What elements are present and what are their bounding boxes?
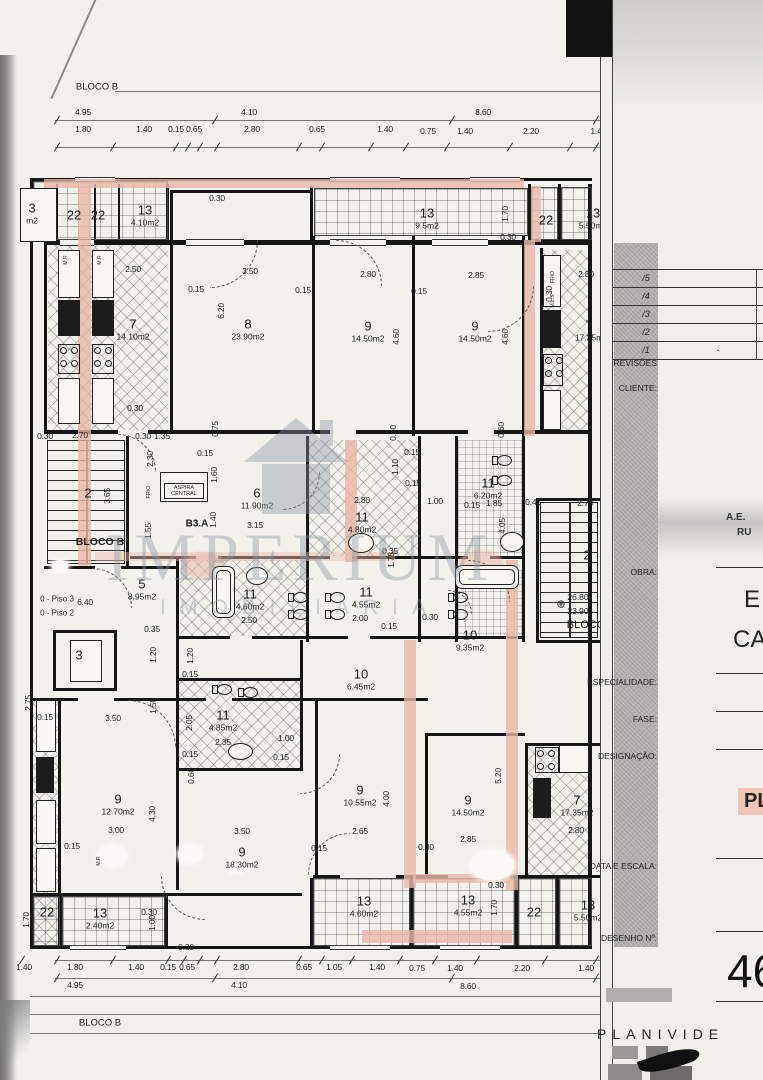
wall — [536, 640, 600, 643]
unit-highlight — [362, 930, 512, 943]
client-value-line2: RU — [737, 527, 751, 538]
dimension-label: 0.15 — [404, 447, 420, 457]
sink — [246, 567, 268, 585]
dimension-label: 1.05 — [326, 962, 342, 972]
date-scale-label: DATA E ESCALA: — [590, 861, 657, 871]
dimension-label: 0.15 — [197, 448, 213, 458]
room-label: 22 — [91, 209, 105, 224]
dimension-line — [55, 978, 600, 979]
room-label: 2 — [583, 549, 590, 564]
dimension-label: 8.60 — [475, 107, 491, 117]
toilet — [288, 592, 309, 604]
dimension-label: 2.85 — [460, 834, 476, 844]
wall — [418, 436, 421, 642]
sink — [500, 532, 524, 552]
dimension-label: 3.00 — [108, 825, 124, 835]
dimension-label: 2.00 — [352, 613, 368, 623]
toilet — [325, 592, 346, 604]
room-label: 3m2 — [26, 202, 38, 227]
oven — [533, 778, 551, 818]
dimension-label: 0.60 — [186, 768, 196, 784]
title-block-rule — [716, 749, 763, 750]
dimension-label: 0.35 — [144, 624, 160, 634]
wall — [425, 735, 428, 878]
toilet — [288, 609, 309, 621]
dimension-label: 3.50 — [234, 826, 250, 836]
toilet — [325, 609, 346, 621]
door-gap — [468, 430, 494, 434]
dimension-label: 0.65 — [179, 962, 195, 972]
door-swing-arc — [92, 568, 132, 608]
appliance-box — [58, 250, 80, 298]
dimension-label: 0.15 — [160, 962, 176, 972]
work-value-line2: CA — [733, 626, 763, 654]
dimension-label: 1.50 — [148, 698, 158, 714]
room-label: 910.55m2 — [343, 784, 376, 809]
wall — [178, 768, 303, 771]
plan-text: 26.80 — [567, 592, 588, 602]
revision-table-line — [612, 269, 763, 270]
dimension-label: 1.10 — [390, 459, 400, 475]
dimension-label: 2.80 — [233, 962, 249, 972]
unit-highlight — [78, 186, 91, 566]
dimension-label: 2.70 — [577, 498, 593, 508]
dimension-label: 0.60 — [496, 422, 506, 438]
title-block-rule — [716, 1001, 763, 1002]
room-label: 22 — [539, 214, 553, 229]
title-block-divider-line — [600, 57, 601, 1080]
dimension-label: 1.70 — [21, 912, 31, 928]
room-label: 914.50m2 — [458, 320, 491, 345]
scan-spot — [98, 846, 126, 866]
logo-block — [612, 1046, 638, 1059]
unit-highlight — [524, 240, 535, 436]
dimension-label: 4.10 — [241, 107, 257, 117]
dimension-label: 6.20 — [216, 303, 226, 319]
dimension-label: 3.15 — [247, 520, 263, 530]
dimension-label: 4.60 — [391, 329, 401, 345]
dimension-label: 3.65 — [102, 488, 112, 504]
dimension-label: 3.50 — [242, 266, 258, 276]
scanned-floor-plan-page: BLOCO B BLOCO B 4.954.108.601.801.400.15… — [0, 0, 763, 1080]
dimension-label: 1.40 — [457, 126, 473, 136]
unit-highlight — [506, 560, 518, 890]
dimension-label: 1.70 — [500, 206, 510, 222]
dimension-label: 2.70 — [72, 430, 88, 440]
dimension-label: 4.00 — [381, 791, 391, 807]
dimension-label: 3.50 — [105, 713, 121, 723]
dimension-label: 2.20 — [514, 963, 530, 973]
wall — [114, 630, 117, 691]
dimension-label: 1.70 — [489, 900, 499, 916]
bathtub — [455, 565, 519, 589]
dimension-label: 1.00 — [147, 915, 157, 931]
wall — [310, 186, 313, 241]
logo-smudge — [606, 988, 672, 1002]
dimension-label: 4.30 — [147, 806, 157, 822]
title-block-label-band — [614, 243, 658, 947]
dimension-line — [55, 960, 600, 961]
room-label: 132.40m2 — [86, 907, 114, 932]
revision-table-column-line — [756, 269, 757, 359]
bathtub — [212, 566, 235, 618]
dimension-label: 2.80 — [354, 495, 370, 505]
dimension-label: 0.65 — [186, 124, 202, 134]
dimension-label: 1.00 — [278, 733, 294, 743]
dimension-label: 6.40 — [77, 597, 93, 607]
sink — [348, 533, 374, 553]
oven — [543, 310, 561, 348]
dimension-label: 1.35 — [154, 431, 170, 441]
dimension-label: 1.40 — [136, 124, 152, 134]
oven — [92, 300, 114, 336]
toilet — [448, 609, 469, 621]
plan-text: FRIO — [550, 271, 556, 283]
room-label: 135.50m2 — [574, 899, 602, 924]
wall — [53, 630, 56, 691]
dimension-label: 0.15 — [182, 669, 198, 679]
dimension-line — [55, 147, 600, 148]
door-gap — [78, 698, 114, 701]
dimension-label: 1.40 — [128, 962, 144, 972]
appliance-box — [36, 800, 56, 844]
title-block-rule — [716, 567, 763, 568]
revision-table-line — [612, 305, 763, 306]
dimension-label: 0.30 — [500, 232, 516, 242]
dimension-label: 0.30 — [488, 880, 504, 890]
hatch-area — [33, 896, 60, 946]
dimension-label: 1.80 — [67, 962, 83, 972]
dimension-label: 2.80 — [568, 825, 584, 835]
room-label: 22 — [40, 906, 54, 921]
window — [432, 239, 488, 246]
dimension-label: 2.65 — [352, 826, 368, 836]
logo-block — [608, 1064, 642, 1080]
plan-text: M.L.S — [550, 294, 556, 307]
room-label: 914.50m2 — [451, 794, 484, 819]
dimension-label: 0.45 — [525, 497, 541, 507]
scan-spot — [178, 845, 202, 863]
revision-table-line — [612, 287, 763, 288]
dimension-label: 2.80 — [244, 124, 260, 134]
revision-row-label: /5 — [642, 273, 650, 283]
scan-spot — [470, 850, 514, 880]
dimension-label: 0.30 — [37, 431, 53, 441]
title-block-edge-line — [612, 0, 613, 1080]
dimension-label: 5.20 — [493, 768, 503, 784]
client-value-line1: A.E. — [726, 512, 745, 523]
room-label: 109.35m2 — [456, 629, 484, 654]
dimension-label: 0.30 — [209, 193, 225, 203]
wall — [44, 245, 47, 433]
wall — [53, 630, 117, 633]
plan-text: M.L.R — [97, 311, 103, 324]
dimension-label: 0.15 — [182, 749, 198, 759]
room-label: 611.90m2 — [241, 487, 273, 512]
room-label: 918.30m2 — [225, 846, 258, 871]
wall — [300, 640, 303, 770]
dimension-label: 0.15 — [311, 843, 327, 853]
dimension-label: 1.40 — [578, 963, 594, 973]
plan-text: M.R — [97, 255, 103, 264]
dimension-label: 4.95 — [67, 980, 83, 990]
dimension-label: 2.85 — [468, 270, 484, 280]
wall — [170, 190, 173, 433]
revision-row-label: /4 — [642, 291, 650, 301]
room-label: 114.80m2 — [348, 511, 376, 536]
plan-text: 0 - Piso 2 — [40, 609, 74, 618]
toilet — [212, 684, 233, 696]
revision-table-line — [612, 359, 763, 360]
room-label: 22 — [67, 209, 81, 224]
door-swing-arc — [336, 240, 382, 286]
room-label: 912.70m2 — [101, 793, 134, 818]
plan-text: M.L.R — [63, 311, 69, 324]
dimension-label: 1.40 — [447, 963, 463, 973]
dimension-label: 1.55 — [143, 523, 153, 539]
dimension-label: 4.60 — [500, 329, 510, 345]
scan-black-box — [566, 0, 612, 57]
drawing-no-label: DESENHO Nº: — [601, 933, 657, 943]
dimension-label: 0.30 — [178, 942, 194, 952]
dimension-label: 0.65 — [309, 124, 325, 134]
title-block-rule — [716, 858, 763, 859]
dimension-label: 1.20 — [148, 647, 158, 663]
dimension-label: 1.40 — [208, 512, 218, 528]
appliance-box — [36, 700, 56, 752]
client-label: CLIENTE: — [619, 383, 657, 393]
dimension-label: 0.30 — [422, 612, 438, 622]
room-label: 106.45m2 — [347, 668, 375, 693]
planivide-logo-text: PLANIVIDE — [597, 1026, 724, 1042]
dimension-label: 0.15 — [381, 621, 397, 631]
dimension-label: 0.15 — [168, 124, 184, 134]
dimension-label: 1.40 — [377, 124, 393, 134]
dimension-label: 0.60 — [388, 425, 398, 441]
dimension-label: 0.65 — [296, 962, 312, 972]
dimension-label: 0.35 — [382, 546, 398, 556]
plan-text: ⊕ — [556, 598, 565, 611]
toilet — [238, 687, 259, 699]
plan-text: M.R — [96, 856, 102, 865]
stairs — [540, 502, 598, 638]
dimension-label: 0.15 — [411, 286, 427, 296]
scan-wash-top — [612, 0, 763, 108]
dimension-label: 2.50 — [241, 615, 257, 625]
cooktop-burners — [92, 344, 114, 374]
appliance-box — [92, 250, 114, 298]
dimension-label: 0.15 — [295, 285, 311, 295]
toilet — [492, 455, 513, 467]
wall — [412, 236, 415, 436]
revision-row-label: /2 — [642, 327, 650, 337]
dimension-label: 0.15 — [188, 284, 204, 294]
room-label: 114.55m2 — [352, 586, 380, 611]
dimension-label: 2.80 — [360, 269, 376, 279]
appliance-box — [92, 378, 114, 424]
designation-value: PL — [738, 788, 763, 815]
oven — [58, 300, 80, 336]
appliance-box — [543, 390, 561, 430]
door-gap — [230, 636, 252, 639]
appliance-box — [559, 745, 589, 773]
designation-label: DESIGNAÇÃO: — [598, 751, 657, 761]
plan-text: B3.A — [186, 519, 209, 530]
cooktop-burners — [543, 354, 563, 386]
plan-text: FRIO — [146, 485, 152, 498]
dimension-label: 1.40 — [369, 962, 385, 972]
dimension-label: 2.75 — [23, 695, 33, 711]
specialty-label: ESPECIALIDADE: — [587, 677, 657, 687]
dimension-label: 2.35 — [215, 737, 231, 747]
title-block-rule — [716, 711, 763, 712]
room-label: 114.60m2 — [236, 588, 264, 613]
dimension-line — [55, 120, 600, 121]
revision-row-label: /1 — [642, 345, 650, 355]
door-swing-arc — [300, 754, 340, 794]
door-swing-arc — [210, 240, 258, 288]
oven — [36, 757, 54, 793]
wall — [165, 893, 168, 947]
plan-text: M.R — [63, 255, 69, 264]
dimension-label: 0.15 — [37, 712, 53, 722]
dimension-label: 0.30 — [135, 431, 151, 441]
unit-highlight — [44, 179, 524, 188]
dimension-line — [115, 91, 600, 92]
dimension-label: 8.60 — [460, 981, 476, 991]
room-label: 2 — [84, 487, 91, 502]
dimension-label: 1.60 — [209, 467, 219, 483]
toilet — [448, 592, 469, 604]
room-label: 22 — [527, 906, 541, 921]
dimension-label: 2.05 — [184, 715, 194, 731]
room-label: 823.90m2 — [231, 318, 264, 343]
plan-text: BLOCO B — [76, 536, 124, 548]
room-label: 114.85m2 — [209, 709, 237, 734]
dimension-label: 4.05 — [497, 518, 507, 534]
title-block-rule — [716, 673, 763, 674]
room-label: 3 — [75, 649, 82, 664]
plan-text: 0 - Piso 3 — [40, 595, 74, 604]
dimension-label: 2.30 — [145, 451, 155, 467]
dimension-label: 2.20 — [523, 126, 539, 136]
wall — [53, 688, 117, 691]
room-label: 116.20m2 — [474, 477, 502, 502]
work-value-line1: E — [744, 586, 760, 614]
scan-spot — [52, 560, 68, 572]
revision-table-line — [612, 341, 763, 342]
dimension-label: 0.15 — [464, 500, 480, 510]
appliance-box — [36, 848, 56, 892]
dimension-label: 0.75 — [420, 126, 436, 136]
dimension-label: 0.15 — [273, 752, 289, 762]
cooktop-burners — [58, 344, 80, 374]
room-label: 134.60m2 — [350, 895, 378, 920]
dimension-label: 4.10 — [231, 980, 247, 990]
dimension-label: 0.30 — [127, 403, 143, 413]
room-label: 58.95m2 — [128, 578, 156, 603]
wall — [536, 498, 539, 643]
dimension-label: 1.40 — [16, 962, 32, 972]
phase-label: FASE: — [633, 714, 657, 724]
cooktop-burners — [535, 747, 559, 773]
dimension-label: 1.80 — [75, 124, 91, 134]
dimension-label: 1.00 — [427, 496, 443, 506]
appliance-box — [58, 378, 80, 424]
title-block-rule — [716, 931, 763, 932]
dimension-label: 0.30 — [418, 842, 434, 852]
plan-text: ASPIRA CENTRAL — [164, 483, 204, 499]
dimension-label: 4.95 — [75, 107, 91, 117]
drawing-number-value: 46 — [727, 944, 763, 998]
dimension-label: 0.15 — [64, 841, 80, 851]
dimension-label: 2.80 — [578, 269, 594, 279]
unit-highlight — [404, 640, 416, 888]
dimension-label: 0.75 — [409, 963, 425, 973]
door-gap — [330, 430, 356, 434]
work-label: OBRA: — [631, 567, 657, 577]
door-gap — [348, 636, 370, 639]
wall — [312, 236, 315, 434]
room-label: 134.10m2 — [131, 204, 159, 229]
sink — [228, 743, 253, 760]
revision-row-value: - — [717, 345, 720, 355]
room-label: 139.5m2 — [415, 207, 439, 232]
dimension-label: 0.75 — [210, 421, 220, 437]
revision-row-label: /3 — [642, 309, 650, 319]
room-label: 717.35m2 — [560, 794, 593, 819]
revision-table-line — [612, 323, 763, 324]
dimension-label: 2.50 — [125, 264, 141, 274]
room-label: 134.55m2 — [454, 894, 482, 919]
dimension-label: 0.15 — [405, 478, 421, 488]
dimension-label: 1.20 — [185, 648, 195, 664]
plan-text: 23.90 — [567, 606, 588, 616]
room-label: 714.10m2 — [116, 318, 149, 343]
room-label: 914.50m2 — [351, 320, 384, 345]
wall — [170, 190, 312, 193]
room-label: 717.35m — [575, 319, 603, 344]
